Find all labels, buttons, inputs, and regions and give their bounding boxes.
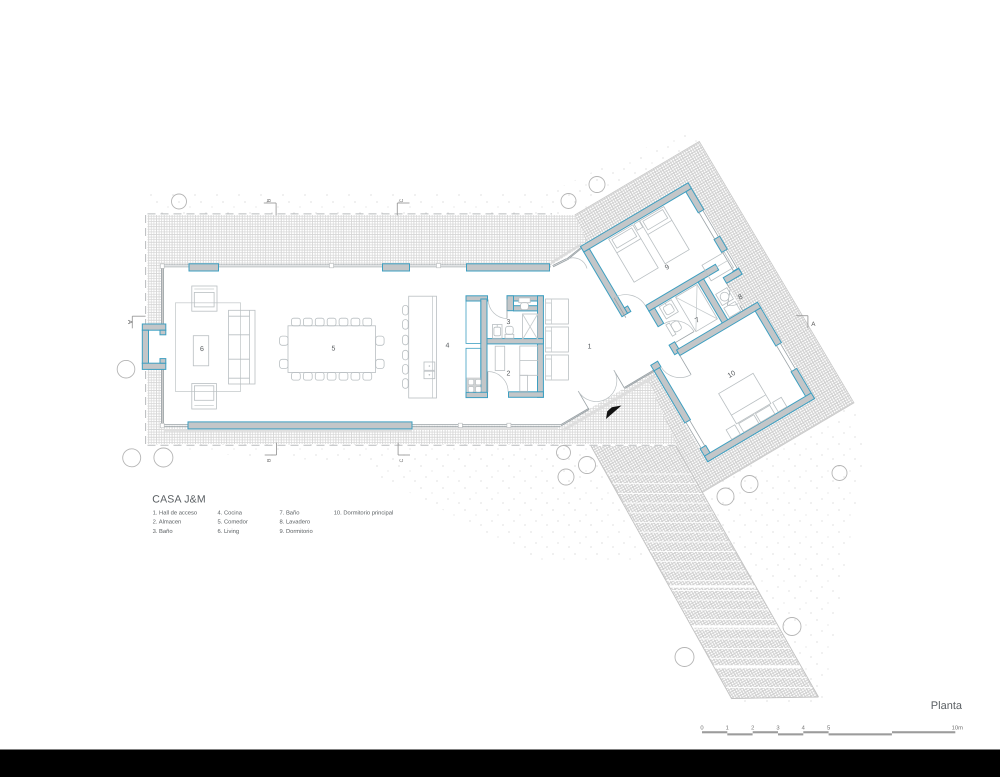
svg-text:3: 3 (776, 725, 779, 732)
svg-text:7. Baño: 7. Baño (280, 509, 300, 516)
svg-text:C: C (399, 198, 405, 202)
svg-text:6. Living: 6. Living (218, 528, 240, 535)
svg-text:4. Cocina: 4. Cocina (218, 509, 243, 516)
svg-text:4: 4 (446, 343, 450, 350)
svg-text:3. Baño: 3. Baño (153, 528, 173, 535)
svg-text:1: 1 (726, 726, 729, 732)
svg-text:9. Dormitorio: 9. Dormitorio (280, 528, 313, 535)
svg-text:1. Hall de acceso: 1. Hall de acceso (153, 509, 197, 516)
svg-text:0: 0 (700, 725, 703, 732)
svg-text:3: 3 (507, 319, 511, 326)
svg-text:CASA J&M: CASA J&M (152, 494, 206, 506)
svg-text:10. Dormitorio principal: 10. Dormitorio principal (334, 509, 394, 516)
svg-text:Planta: Planta (931, 700, 963, 712)
svg-text:5: 5 (332, 346, 336, 353)
svg-text:10m: 10m (952, 725, 963, 732)
svg-text:5. Comedor: 5. Comedor (218, 519, 248, 526)
svg-text:2. Almacen: 2. Almacen (153, 519, 182, 526)
svg-text:6: 6 (200, 346, 204, 353)
svg-text:1: 1 (588, 343, 592, 350)
svg-text:2: 2 (751, 725, 754, 732)
svg-text:C: C (399, 458, 405, 462)
svg-text:2: 2 (507, 371, 511, 378)
svg-text:5: 5 (827, 726, 830, 732)
svg-text:8. Lavadero: 8. Lavadero (280, 519, 311, 526)
